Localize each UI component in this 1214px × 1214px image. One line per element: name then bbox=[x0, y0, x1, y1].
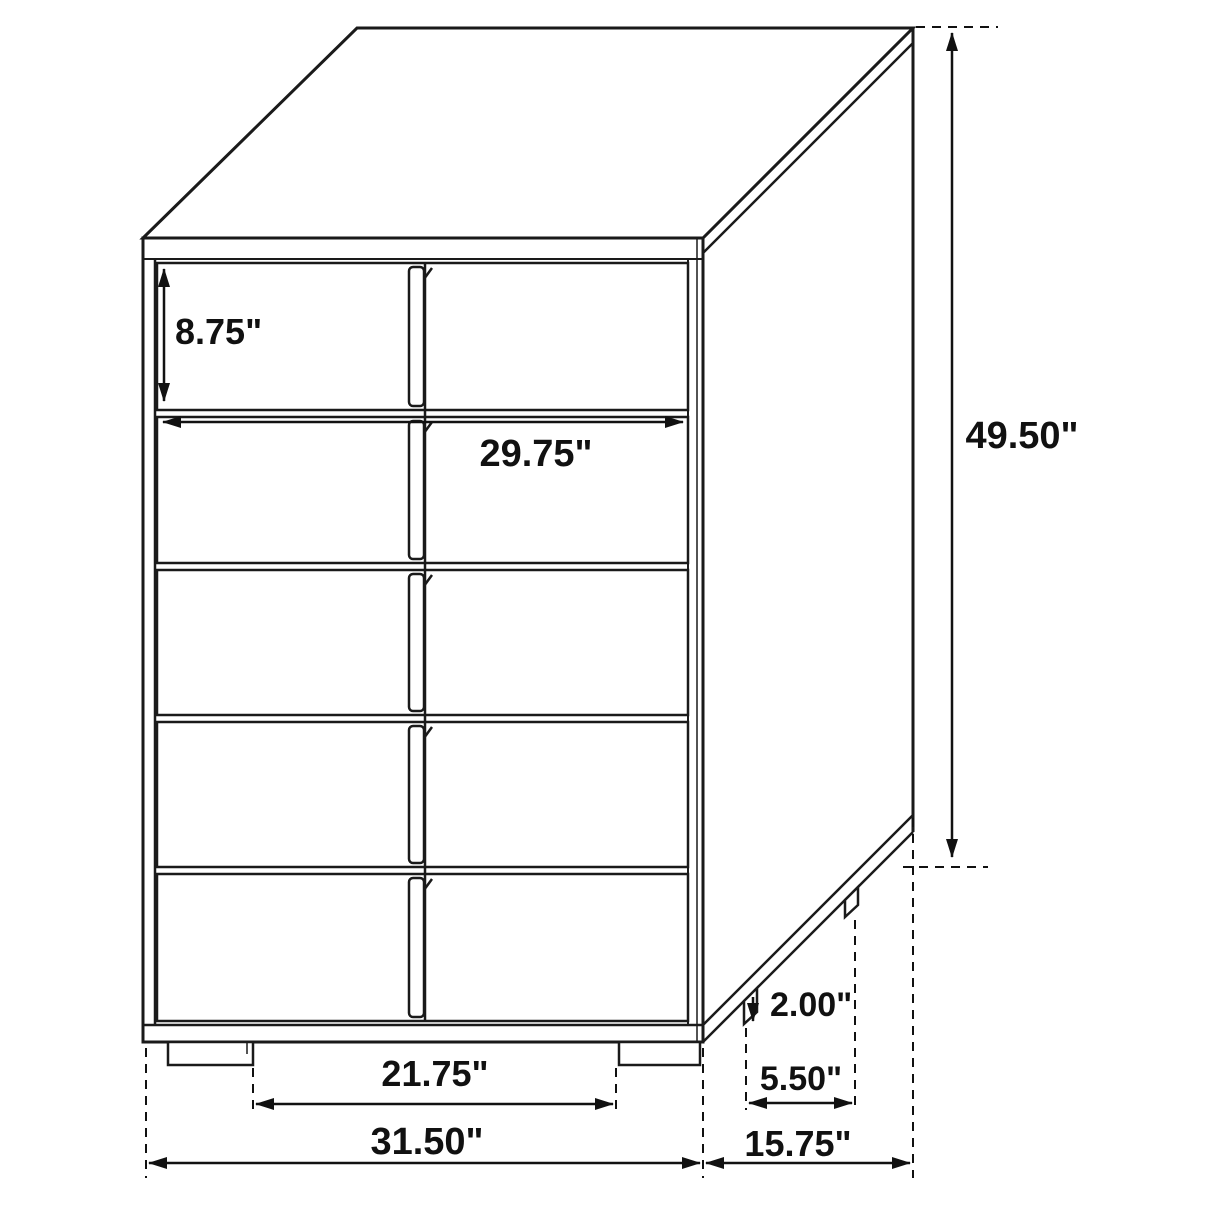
chest-top-face bbox=[143, 28, 913, 238]
drawer-width-label: 29.75" bbox=[479, 433, 592, 475]
side-back-foot bbox=[845, 887, 858, 917]
drawer-handle-3 bbox=[409, 574, 424, 711]
chest-outline bbox=[143, 28, 913, 1065]
drawer-handle-2 bbox=[409, 421, 424, 559]
drawer-handle-5 bbox=[409, 878, 424, 1017]
side-foot-spacing-label: 5.50" bbox=[760, 1060, 842, 1098]
front-foot-spacing-label: 21.75" bbox=[381, 1053, 488, 1094]
dimension-drawing-canvas: 8.75" 29.75" 49.50" 2.00" 5.50" 21.75" 3… bbox=[0, 0, 1214, 1214]
foot-height-label: 2.00" bbox=[770, 986, 852, 1024]
front-right-foot bbox=[619, 1042, 700, 1065]
overall-height-label: 49.50" bbox=[965, 415, 1078, 457]
front-left-foot bbox=[168, 1042, 253, 1065]
overall-width-label: 31.50" bbox=[370, 1121, 483, 1163]
drawer-height-label: 8.75" bbox=[175, 311, 262, 352]
furniture-dimension-diagram: 8.75" 29.75" 49.50" 2.00" 5.50" 21.75" 3… bbox=[0, 0, 1214, 1214]
drawer-handle-1 bbox=[409, 267, 424, 406]
overall-depth-label: 15.75" bbox=[744, 1123, 851, 1164]
side-front-foot bbox=[744, 988, 757, 1024]
drawer-handle-4 bbox=[409, 726, 424, 863]
